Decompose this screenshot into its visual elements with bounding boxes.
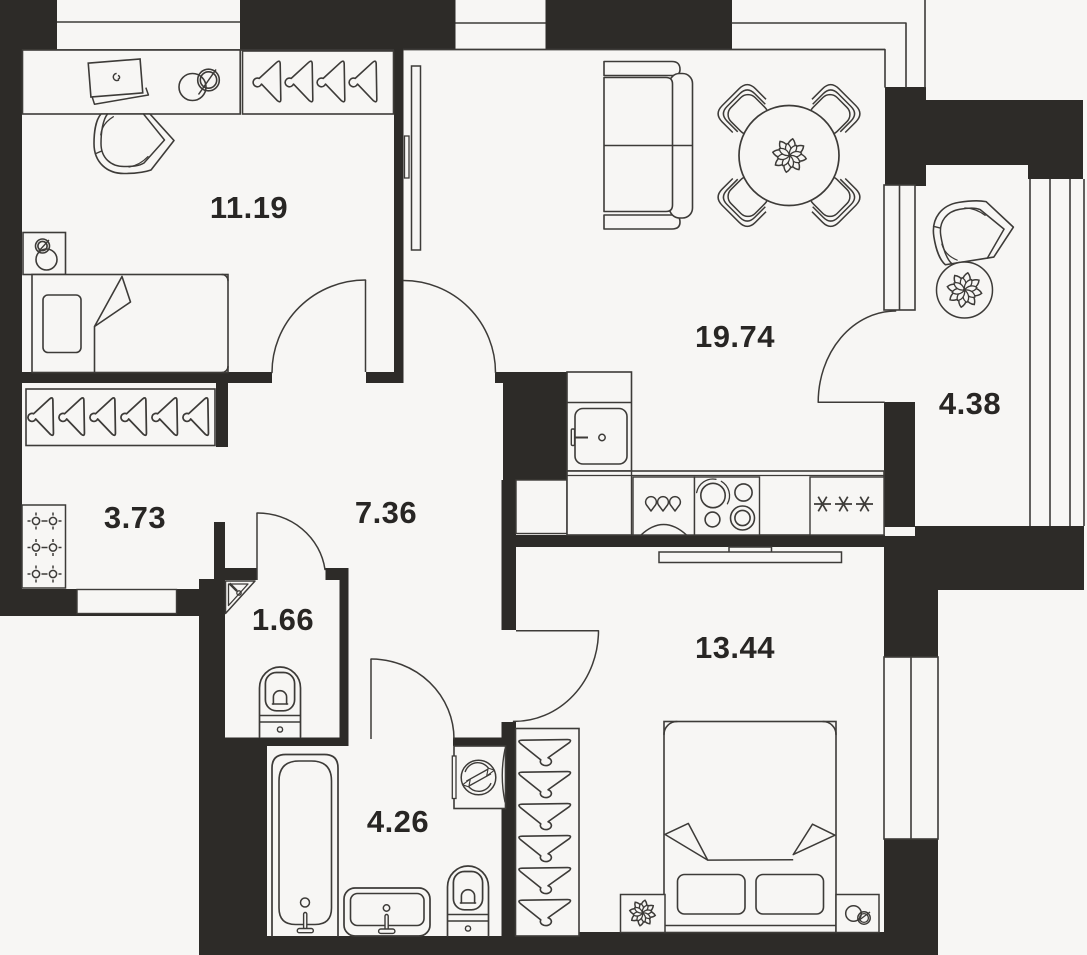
svg-text:4.38: 4.38 [939,386,1001,421]
svg-text:19.74: 19.74 [695,319,775,354]
svg-text:11.19: 11.19 [210,190,288,225]
svg-text:1.66: 1.66 [252,602,314,637]
svg-text:3.73: 3.73 [104,500,166,535]
svg-text:13.44: 13.44 [695,630,775,665]
svg-text:4.26: 4.26 [367,804,429,839]
svg-text:7.36: 7.36 [355,495,417,530]
